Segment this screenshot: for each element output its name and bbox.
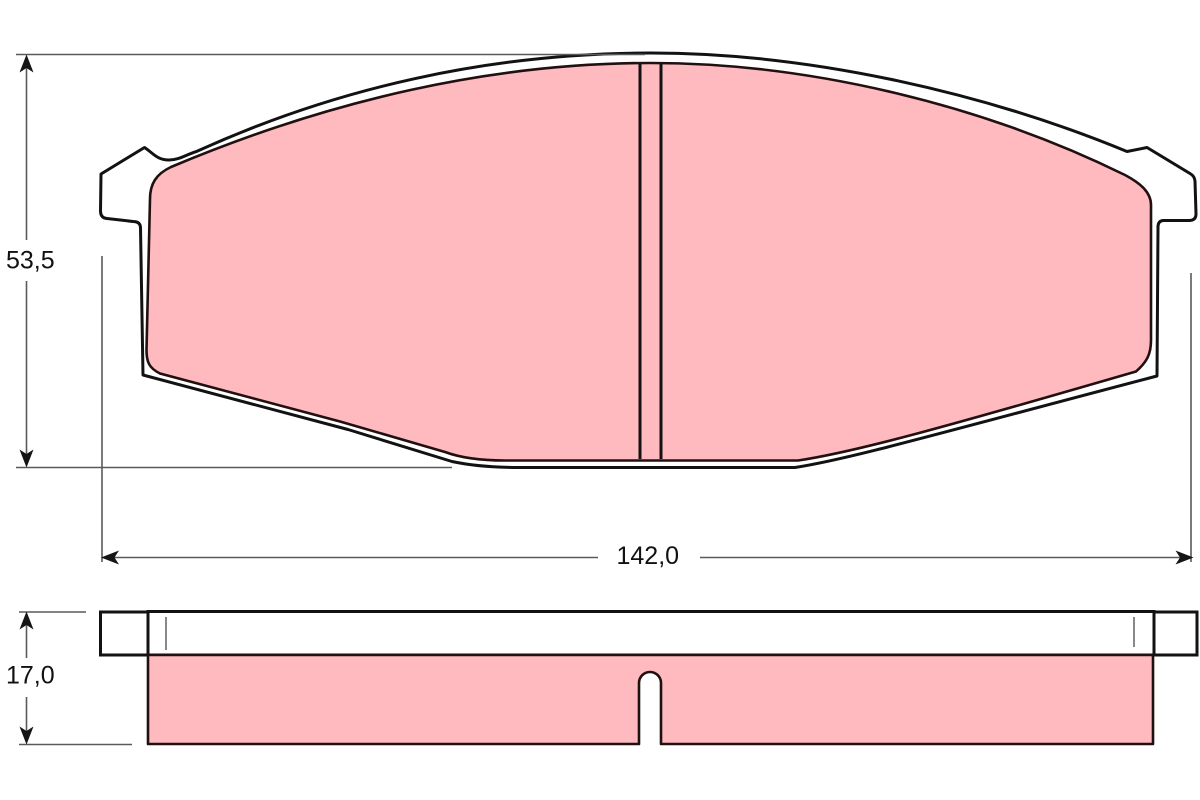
svg-text:53,5: 53,5 [6,247,55,275]
svg-text:142,0: 142,0 [617,542,680,570]
svg-text:17,0: 17,0 [6,662,55,690]
